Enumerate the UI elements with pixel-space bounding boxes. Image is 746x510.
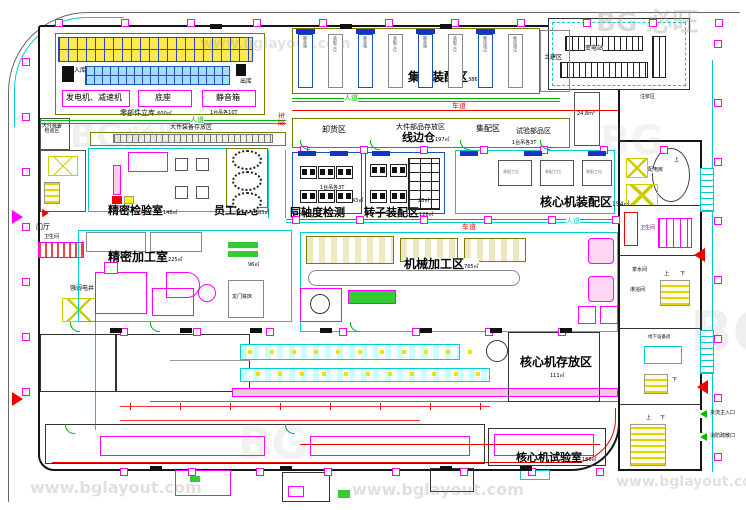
column-marker [392,468,400,476]
crane3t-label-b: 1台吊各3T [512,141,536,146]
pm-machine-circle [198,284,216,302]
pm-machine-3 [166,272,200,298]
column-marker [480,146,488,154]
veh-label-top: 车道 [452,103,466,110]
substation-rack-1 [565,36,643,51]
left-stair [44,182,60,204]
tea-room-label: 茶水间 [632,268,647,273]
large-equip-store-label: 大件装备存放区 [170,125,212,131]
column-marker [253,19,261,27]
test-parts-label: 试验部品区 [516,128,551,135]
pm-machine-1 [95,272,147,314]
machine-pair [370,190,387,203]
machine-pair [370,164,387,177]
core-test-label: 核心机试验室186㎡ [516,452,597,464]
column-marker [22,168,30,176]
dim-tick [230,403,231,410]
mc-toolroom-2 [600,306,618,324]
rw-wall-1 [620,205,700,206]
conveyor-dot [336,350,340,354]
conveyor-dot [344,372,348,376]
assembly-slot: 静音箱 [358,34,373,88]
conveyor-dot [432,372,436,376]
column-marker [22,333,30,341]
coaxiality-bay [292,152,362,214]
column-marker [356,216,364,224]
column-marker [292,216,300,224]
ped-line-top [292,98,560,102]
pm-machine-1b [104,262,118,274]
column-marker [548,216,556,224]
pi-bench-4 [196,186,209,199]
arrow-topleft [42,209,49,217]
core-storage-area: 111㎡ [550,374,565,379]
column-marker [596,468,604,476]
column-marker [420,216,428,224]
dim-line-3 [95,300,96,430]
veh-label-vert: 车道 [277,112,284,126]
machine-pair [336,190,353,203]
column-marker [517,19,525,27]
ls-area: 197㎡ [435,137,450,143]
core-storage-label: 核心机存放区 [520,356,592,369]
column-marker [121,19,129,27]
column-marker [583,19,591,27]
machine-pair [300,190,317,203]
column-marker [55,19,63,27]
rw-wall-2 [620,255,700,256]
mc-text: 机械加工区 [404,257,464,271]
conveyor-dot [314,350,318,354]
conveyor-dot [410,372,414,376]
conveyor-dot [366,372,370,376]
conveyor-dot [270,350,274,354]
column-marker [266,328,274,336]
assembly-slot: 装配工位 [448,34,463,88]
rw-redbox [624,212,638,246]
column-marker [188,468,196,476]
ped-label-mid: 人道 [566,218,580,225]
mc-big-1 [306,236,394,264]
toilet-label-left: 卫生间 [44,235,59,240]
ca-text: 核心机装配区 [540,195,612,209]
staff-table [232,171,262,191]
column-marker [451,19,459,27]
fire-exit-label: 消防疏散口 [710,434,735,439]
pm-subroom-1 [86,232,146,252]
bt-pink-2 [310,436,470,456]
column-marker [324,468,332,476]
staff-table [232,192,262,212]
pi-bench-2 [196,158,209,171]
assembly-slot-label: 静音箱 [363,36,368,48]
column-marker [420,146,428,154]
column-marker [120,468,128,476]
core-assembly-label: 核心机装配区154㎡ [540,196,629,209]
assembly-slot: 静音箱 [418,34,433,88]
mc-pink-machine-1 [588,238,614,264]
room96-label: 96㎡ [248,263,259,268]
door-blob [440,466,452,471]
substation-label: 变电站 [585,46,603,52]
column-marker [484,216,492,224]
cargo-entrance-label: 货流主入口 [710,411,735,416]
conveyor-dot [446,350,450,354]
assembly-slot-label: 装配工位 [453,36,458,52]
rw-stair-up: 上 [674,158,679,163]
door-blob [420,328,432,333]
cargo-entrance-arrow [700,410,707,418]
bl-room-2 [116,334,250,392]
room43-label: 43㎡ [352,199,363,204]
column-marker [22,113,30,121]
assembly-slot: 装配工位 [388,34,403,88]
conveyor-dot [402,350,406,354]
conveyor-dot [454,372,458,376]
kitting-label: 集配区 [476,125,500,133]
rw-toilet-label: 卫生间 [640,226,655,231]
bp-green-2 [338,490,350,498]
door-blob [110,328,122,333]
dim-tick [430,403,431,410]
rw-wall-3 [620,328,700,329]
pi-area: 148㎡ [163,210,178,216]
bp-green-1 [190,476,200,482]
column-marker [187,19,195,27]
column-marker [412,328,420,336]
fire-exit-arrow [700,433,707,441]
assembly-slot-label: 装配工位 [333,36,338,52]
lei-2: 检验区 [45,128,60,134]
conveyor-dot [476,372,480,376]
conveyor-dot [248,350,252,354]
assembly-slot-label: 静音箱 [303,36,308,48]
door-blob [150,466,162,471]
machine-pair [318,190,335,203]
bt-pink-1 [100,436,265,456]
assembly-slot-label: 集成调试 [513,36,518,52]
column-marker [22,223,30,231]
dock-2 [700,330,714,374]
conveyor-dot [358,350,362,354]
dim-tick [280,403,281,410]
machine-pair [390,190,407,203]
grouting-label: 注浆区 [640,95,655,100]
arrow-right-low [697,380,708,394]
core-bench-label-1: 装配工位 [503,170,519,174]
column-marker [385,19,393,27]
spiral-machine [486,340,508,362]
crane-cap [524,151,542,156]
conveyor-dot [388,372,392,376]
conveyor-dot [468,350,472,354]
conveyor-dot [292,350,296,354]
pi-color-strip-r [112,196,122,204]
assembly-slot-label: 静音箱 [423,36,428,48]
room-248-label: 24.8m² [577,112,595,117]
rw-stair-bot-down: 下 [660,416,665,421]
machine-pair [318,166,335,179]
crane-cap [298,151,316,156]
rw-stair-mid [660,280,690,306]
staff-table [232,150,262,170]
door-blob [320,328,332,333]
ls-text: 线边仓 [402,131,435,144]
pi-bench-3 [175,186,188,199]
assembly-slot: 集成调试 [478,34,493,88]
column-marker [22,278,30,286]
column-marker [715,19,723,27]
precision-inspect-label: 精密检验室148㎡ [108,205,178,217]
ct-red-line [300,444,600,445]
column-marker [714,335,722,343]
rw-xbox-1 [626,158,648,178]
shower-label: 淋浴间 [630,288,645,293]
sg-area: 83㎡ [258,210,269,216]
dim-tick [380,403,381,410]
conveyor-dot [300,372,304,376]
underground-label: 地下设备房 [648,336,671,341]
conveyor-dot [278,372,282,376]
mc-green-machine-1 [348,290,396,304]
dim-tick [130,403,131,410]
unloading-label: 卸货区 [322,126,346,134]
machine-pair [300,166,317,179]
conveyor-dot [322,372,326,376]
assembly-slot-label: 装配工位 [393,36,398,52]
dim-tick [330,403,331,410]
door-blob [440,24,452,29]
rw-stair-low-down: 下 [672,378,677,383]
power-room-label: 配电房 [648,168,663,173]
room-248 [574,92,600,146]
pi-bench-1 [175,158,188,171]
civil-label: 土建区 [544,55,562,61]
assembly-slot: 装配工位 [328,34,343,88]
bp-1 [175,470,231,496]
machining-label: 机械加工区765㎡ [404,258,479,271]
ctst-text: 核心机试验室 [516,451,582,464]
rw-cyan-box [644,346,682,364]
gantry-label: 龙门铣床 [232,295,252,300]
column-marker [256,468,264,476]
crane-cap [372,151,390,156]
door-blob [490,328,502,333]
substation-rack-2 [560,62,648,78]
site-boundary-top [95,12,740,13]
column-marker [714,217,722,225]
column-marker [714,158,722,166]
substation-rack-3 [652,36,666,78]
pm-subroom-2 [150,232,202,252]
arrow-right-mid [694,248,705,262]
ped-line-left [40,120,286,124]
crate-x-box [48,156,78,176]
machine-pair [336,166,353,179]
crane-cap [356,29,375,34]
crane-cap [476,29,495,34]
arrow-left-mid [12,210,23,224]
rw-stair-mid-up: 上 [664,272,669,277]
pi-machine-1 [128,152,168,172]
rack-zone-border [55,33,265,115]
pm-green-bar-2 [228,251,258,257]
machine-pair [390,164,407,177]
column-marker [660,146,668,154]
column-marker [460,468,468,476]
bl-room-1 [40,334,116,392]
column-marker [319,19,327,27]
column-marker [649,19,657,27]
door-blob [210,24,222,29]
pmc-area: 225㎡ [168,257,183,263]
column-marker [612,216,620,224]
assembly-slot: 静音箱 [298,34,313,88]
lineside-label: 线边仓197㎡ [402,132,450,144]
rw-stair-low [644,374,668,394]
column-marker [714,394,722,402]
dim-line-2 [120,420,420,421]
pi-color-strip-y [124,196,134,204]
mc-turntable [310,294,330,314]
door-blob [280,466,292,471]
crane-cap [330,151,348,156]
entrance-hall-label: 门厅 [36,224,50,231]
column-marker [22,58,30,66]
ctst-area: 186㎡ [582,457,597,463]
door-blob [560,328,572,333]
rw-stair-bottom [630,424,666,466]
dim-line-1 [120,406,490,407]
watermark-url-4: www.bglayout.com [616,474,746,490]
pi-text: 精密检验室 [108,204,163,217]
dim-tick [180,403,181,410]
ped-label-top: 人道 [344,95,358,102]
ped-label-left: 人道 [190,117,204,124]
rw-wall-4 [620,404,700,405]
core-bench-label-2: 装配工位 [545,170,561,174]
dock-1 [700,168,714,212]
conveyor-dot [424,350,428,354]
conveyor-dot [256,372,260,376]
column-marker [22,388,30,396]
crane-cap [296,29,315,34]
core-bench-label-3: 装配工位 [586,170,602,174]
mc-racetrack [308,270,520,286]
door-blob [180,328,192,333]
large-equip-store-hatch [113,134,273,143]
column-marker [714,453,722,461]
column-marker [360,146,368,154]
dim-tick [480,403,481,410]
corridor-left [268,150,286,218]
door-blob [520,466,532,471]
large-equip-inspect-label: 大件装备 检验区 [42,124,62,135]
conveyor-dot [380,350,384,354]
crane-cap [416,29,435,34]
column-marker [714,40,722,48]
veh-label-mid: 车道 [462,224,476,231]
crane-cap [460,151,478,156]
rotor-rack-grid [408,158,440,210]
bp-2-inner [288,486,304,497]
rw-toilet-fixtures [658,218,692,248]
rw-stair-bot-up: 上 [646,416,651,421]
column-marker [339,328,347,336]
site-boundary-left [8,120,9,502]
assembly-slot-label: 集成调试 [483,36,488,52]
rw-stair-mid-down: 下 [680,272,685,277]
door-blob [250,328,262,333]
mc-pink-machine-2 [588,276,614,302]
door-blob [340,24,352,29]
pm-green-bar-1 [228,242,258,248]
bl-room-divider [170,360,250,361]
column-marker [714,99,722,107]
assembly-slot: 集成调试 [508,34,523,88]
column-marker [193,328,201,336]
pi-machine-2 [113,165,121,195]
precision-machining-label: 精密加工室225㎡ [108,251,183,264]
mc-toolroom-1 [578,306,596,324]
rw-xbox-2 [626,184,658,206]
column-marker [714,276,722,284]
factory-floorplan-canvas: 变电站 注浆区 入库 出库 发电机、减速机 底座 静音箱 零部件立库 600㎡ … [0,0,746,510]
crane-cap [588,151,606,156]
